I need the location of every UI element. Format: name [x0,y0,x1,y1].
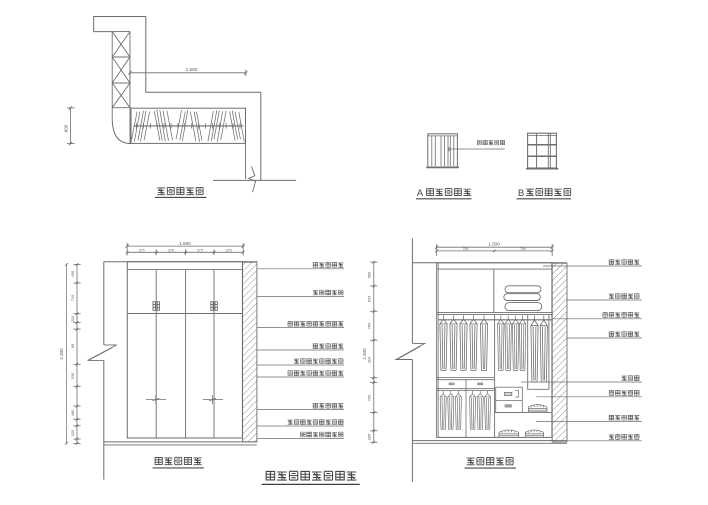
svg-text:730: 730 [367,394,372,401]
svg-text:745: 745 [70,295,75,302]
svg-text:450: 450 [70,270,75,277]
svg-text:A: A [417,188,424,199]
svg-text:750: 750 [463,247,469,251]
svg-text:210: 210 [70,315,75,322]
svg-text:2.400: 2.400 [59,348,64,360]
svg-text:110: 110 [367,356,372,363]
svg-text:B: B [518,188,524,199]
svg-text:320: 320 [70,429,75,436]
svg-text:375: 375 [168,248,174,252]
svg-text:530: 530 [70,372,75,379]
svg-text:1.500: 1.500 [186,67,198,72]
svg-text:85: 85 [70,344,75,348]
svg-text:750: 750 [520,247,526,251]
svg-text:375: 375 [197,248,203,252]
svg-text:295: 295 [367,434,372,441]
svg-text:375: 375 [226,248,232,252]
svg-text:580: 580 [367,271,372,278]
svg-text:1.500: 1.500 [488,242,500,247]
svg-text:615: 615 [367,296,372,303]
svg-text:480: 480 [70,409,75,416]
svg-text:1.500: 1.500 [179,241,191,246]
svg-text:375: 375 [139,248,145,252]
svg-text:700: 700 [367,322,372,329]
svg-text:2.400: 2.400 [362,348,367,360]
svg-text:600: 600 [64,124,69,132]
